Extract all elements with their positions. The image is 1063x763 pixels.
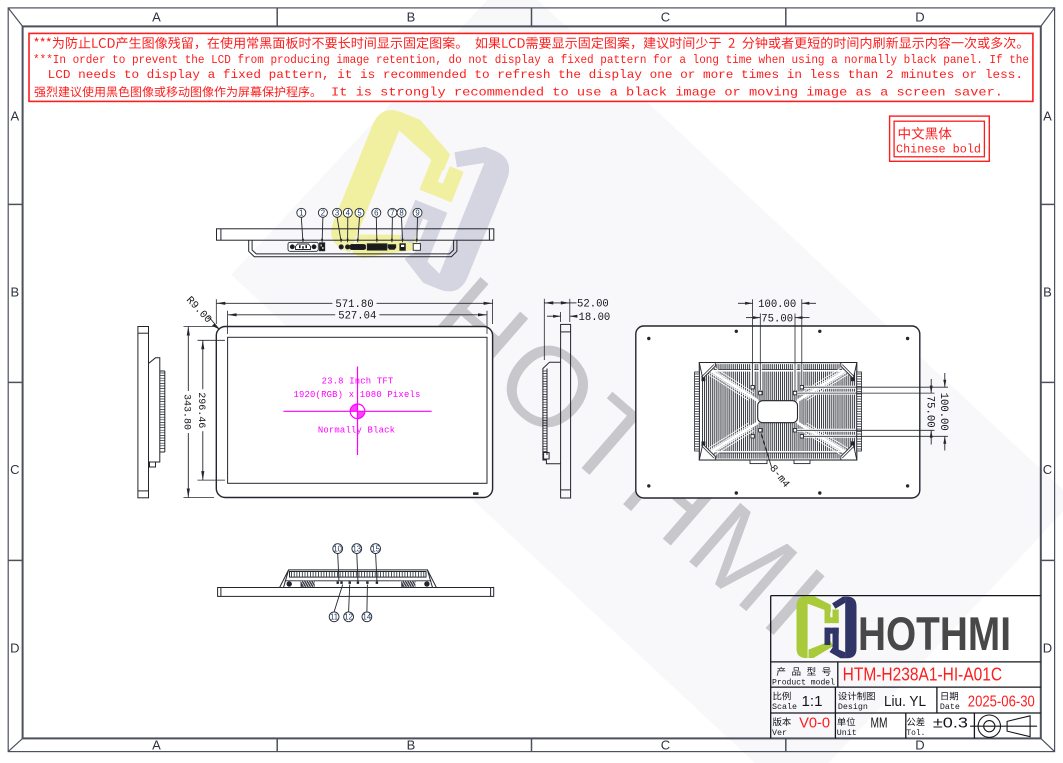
svg-text:A: A: [152, 738, 161, 753]
svg-text:100.00: 100.00: [758, 299, 796, 311]
svg-text:Unit: Unit: [837, 728, 857, 738]
svg-text:1: 1: [299, 209, 303, 218]
svg-text:Product model: Product model: [772, 677, 835, 687]
svg-text:D: D: [10, 641, 19, 656]
svg-text:B: B: [10, 285, 19, 300]
svg-text:D: D: [1043, 641, 1052, 656]
svg-text:±0.3: ±0.3: [933, 715, 968, 732]
svg-text:It is strongly recommended to: It is strongly recommended to use a blac…: [331, 86, 1003, 99]
svg-text:D: D: [915, 738, 924, 753]
svg-text:571.80: 571.80: [335, 299, 373, 311]
svg-text:7: 7: [390, 209, 394, 218]
svg-text:3: 3: [335, 209, 339, 218]
svg-text:LCD needs to display a fixed p: LCD needs to display a fixed pattern, it…: [40, 69, 1023, 82]
svg-text:Ver: Ver: [772, 728, 787, 738]
svg-text:15: 15: [371, 544, 380, 553]
svg-text:13: 13: [352, 544, 361, 553]
svg-text:Design: Design: [838, 702, 868, 712]
svg-text:B: B: [1043, 285, 1052, 300]
svg-text:C: C: [1043, 462, 1052, 477]
svg-text:2025-06-30: 2025-06-30: [968, 693, 1035, 710]
svg-text:4: 4: [346, 209, 351, 218]
svg-text:1920(RGB) x 1080 Pixels: 1920(RGB) x 1080 Pixels: [293, 390, 420, 400]
svg-text:10: 10: [333, 544, 342, 553]
svg-text:343.80: 343.80: [181, 394, 192, 430]
svg-text:8: 8: [399, 209, 403, 218]
svg-text:Tol.: Tol.: [906, 728, 925, 738]
svg-text:Normally Black: Normally Black: [318, 426, 395, 436]
svg-text:V0-0: V0-0: [799, 715, 830, 732]
svg-text:B: B: [407, 10, 416, 25]
svg-text:Date: Date: [940, 702, 960, 712]
svg-text:A: A: [10, 109, 19, 124]
svg-text:Liu. YL: Liu. YL: [884, 693, 926, 710]
svg-text:R9.00: R9.00: [183, 295, 213, 326]
svg-text:HTM-H238A1-HI-A01C: HTM-H238A1-HI-A01C: [843, 664, 1003, 685]
svg-text:52.00: 52.00: [577, 299, 609, 311]
svg-text:D: D: [915, 10, 924, 25]
svg-text:C: C: [661, 10, 670, 25]
svg-text:A: A: [152, 10, 161, 25]
svg-text:23.8 Inch TFT: 23.8 Inch TFT: [322, 376, 394, 386]
svg-text:5: 5: [357, 209, 362, 218]
svg-text:11: 11: [330, 613, 338, 622]
svg-text:B: B: [407, 738, 416, 753]
svg-text:C: C: [10, 462, 19, 477]
svg-text:18.00: 18.00: [579, 312, 611, 324]
svg-text:75.00: 75.00: [761, 313, 793, 325]
svg-text:12: 12: [344, 613, 353, 622]
svg-text:MM: MM: [871, 716, 888, 732]
svg-text:1:1: 1:1: [802, 694, 823, 710]
svg-text:14: 14: [363, 613, 372, 622]
svg-text:HOTHMI: HOTHMI: [858, 607, 1011, 660]
svg-text:296.46: 296.46: [195, 392, 206, 428]
svg-text:***In order to prevent the LCD: ***In order to prevent the LCD from prod…: [33, 54, 1029, 67]
svg-text:2: 2: [321, 209, 325, 218]
svg-text:75.00: 75.00: [924, 396, 936, 428]
svg-text:Scale: Scale: [772, 702, 797, 712]
svg-text:C: C: [661, 738, 670, 753]
svg-text:A: A: [1043, 109, 1052, 124]
svg-text:100.00: 100.00: [937, 393, 949, 431]
svg-text:527.04: 527.04: [338, 310, 376, 322]
svg-text:Chinese bold: Chinese bold: [896, 144, 981, 157]
svg-text:6: 6: [374, 209, 378, 218]
svg-text:9: 9: [415, 209, 419, 218]
